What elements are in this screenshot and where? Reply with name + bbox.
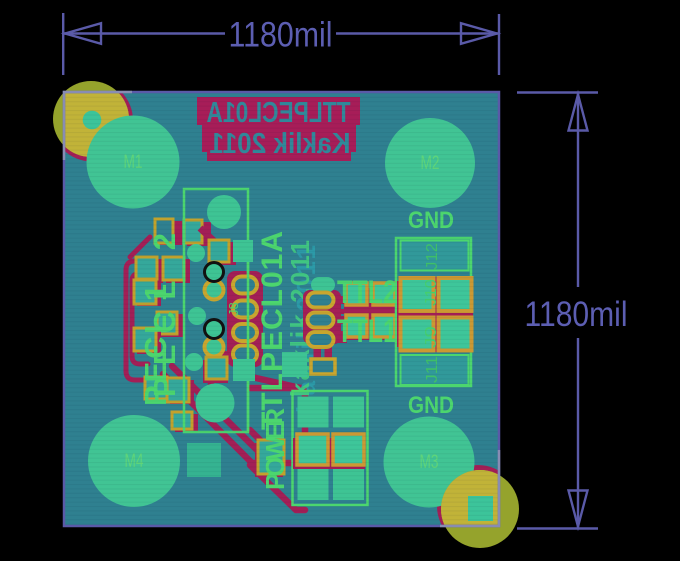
svg-text:1180mil: 1180mil bbox=[229, 16, 333, 55]
svg-text:1180mil: 1180mil bbox=[525, 295, 628, 334]
